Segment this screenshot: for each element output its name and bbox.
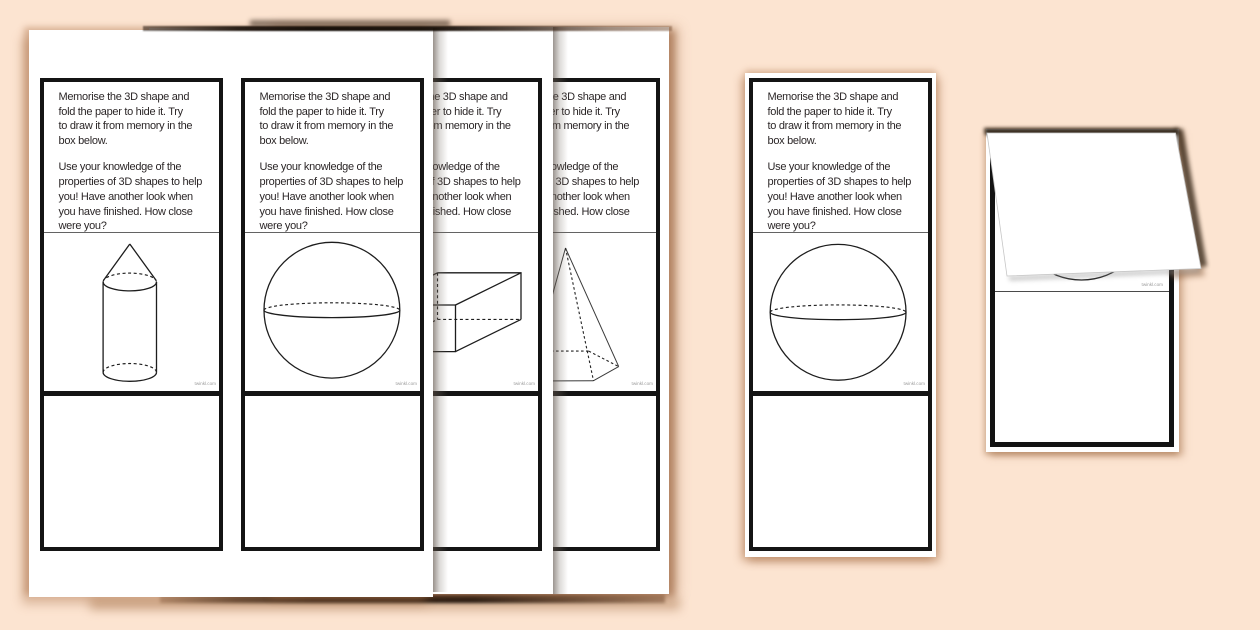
svg-text:twinkl.com: twinkl.com	[904, 381, 926, 386]
svg-text:twinkl.com: twinkl.com	[195, 381, 217, 386]
svg-text:twinkl.com: twinkl.com	[513, 381, 535, 386]
svg-text:twinkl.com: twinkl.com	[632, 381, 654, 386]
svg-text:twinkl.com: twinkl.com	[396, 381, 418, 386]
